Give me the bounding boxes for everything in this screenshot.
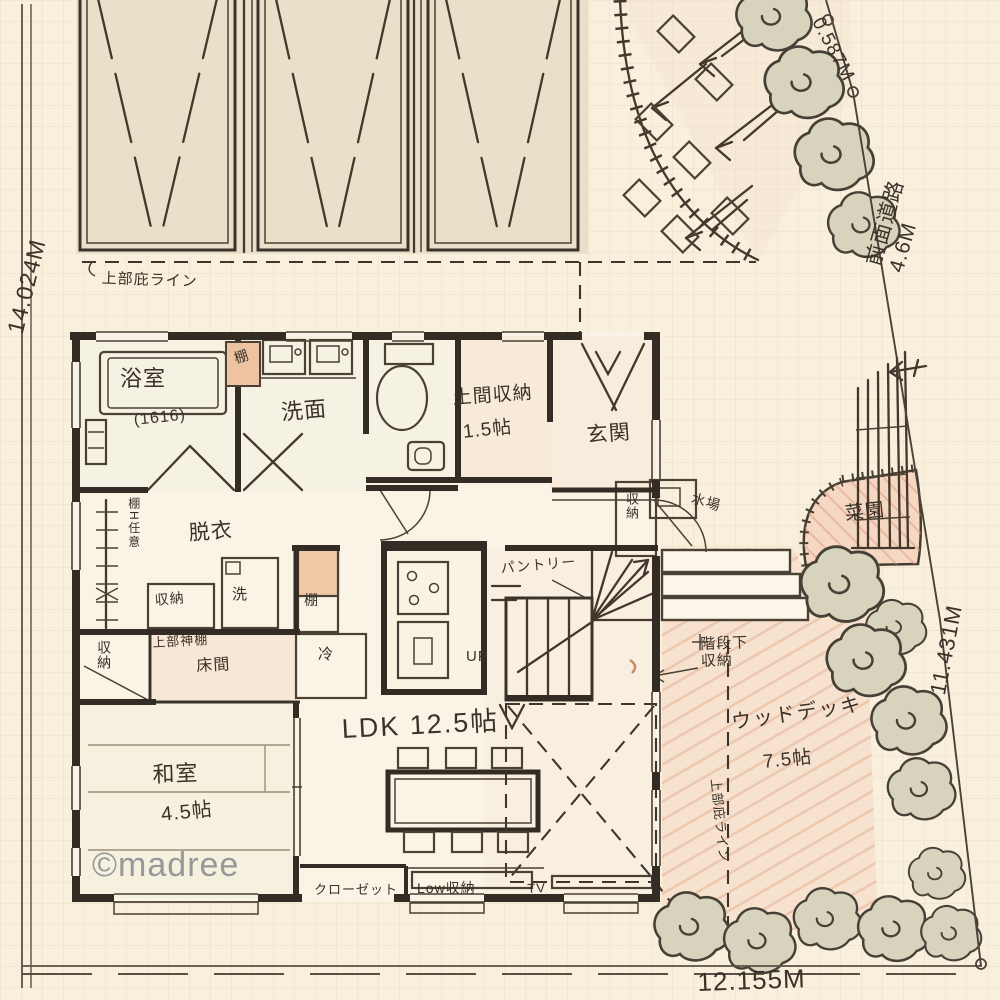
label-tokonoma: 床間: [196, 656, 231, 676]
label-fridge: 冷: [318, 646, 334, 663]
eave-line-top-label: 上部庇ライン: [101, 270, 198, 291]
label-garden-bed: 菜園: [844, 500, 886, 526]
room-label-dressing: 脱衣: [188, 519, 234, 546]
label-kamidana: 上部神棚: [152, 633, 209, 651]
label-washer: 洗: [232, 586, 248, 603]
label-shelf-note: 棚H任意: [126, 497, 140, 550]
dimension-south-label: 12.155M: [697, 964, 806, 998]
room-label-washitsu: 和室: [152, 760, 199, 787]
boundary-marker-icon: [890, 360, 926, 380]
room-label-bath: 浴室: [120, 366, 166, 391]
label-entrance-storage: 収納: [623, 492, 638, 520]
room-label-entrance: 玄関: [586, 421, 632, 448]
floor-plan-canvas: 14.024M 12.155M 11.431M 0.587M 前面道路 4.6M…: [0, 0, 1000, 1000]
label-stairs-up: UP: [466, 648, 489, 665]
room-label-washroom: 洗面: [280, 396, 328, 425]
label-under-stairs: 階段下 収納: [700, 634, 749, 670]
label-low-storage: Low収納: [417, 880, 476, 896]
label-closet-storage: 収納: [96, 640, 112, 670]
watermark: ©madree: [92, 846, 239, 885]
kitchen-island: [384, 544, 484, 692]
label-closet: クローゼット: [314, 883, 398, 898]
label-laundry-storage: 収納: [154, 589, 185, 608]
label-tv: TV: [527, 881, 546, 897]
shelf-label-kitchen: 棚: [304, 592, 319, 608]
